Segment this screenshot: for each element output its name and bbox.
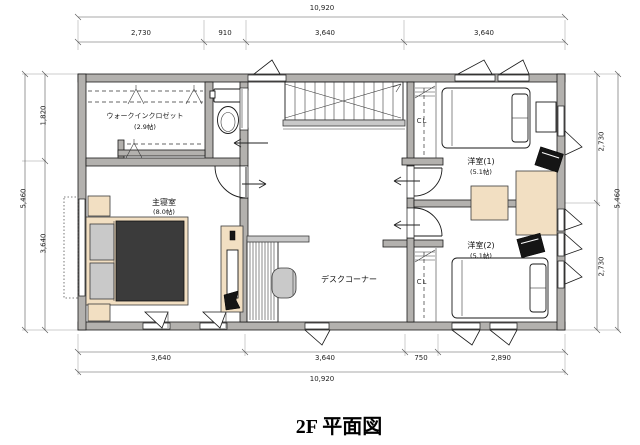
- toilet: [210, 88, 248, 134]
- nightstand: [88, 196, 110, 216]
- room-size-master: (8.0帖): [124, 208, 204, 217]
- master-bed: [86, 217, 188, 305]
- nightstand: [88, 304, 110, 321]
- dim-right-total: 5,460: [614, 179, 623, 219]
- dim-bottom-seg2: 3,640: [295, 354, 355, 363]
- room-label-room1: 洋室(1): [441, 157, 521, 166]
- dim-bottom-seg3: 750: [391, 354, 451, 363]
- room-size-room1: (5.1帖): [441, 168, 521, 177]
- staircase: [283, 82, 405, 129]
- room-size-wic: (2.9帖): [95, 123, 195, 132]
- room-label-master: 主寝室: [124, 198, 204, 207]
- dim-top-seg2: 910: [195, 29, 255, 38]
- dim-top-total: 10,920: [282, 4, 362, 13]
- closet2-label: CL: [410, 278, 434, 287]
- floor-plan-page: 10,920 2,730 910 3,640 3,640 3,640 3,640…: [0, 0, 640, 445]
- dim-bottom-total: 10,920: [282, 375, 362, 384]
- dim-right-seg2: 2,730: [598, 247, 607, 287]
- hanger-icon: [126, 85, 202, 158]
- bed-room1: [442, 88, 556, 148]
- room-label-wic: ウォークインクロゼット: [95, 112, 195, 121]
- dim-bottom-seg4: 2,890: [471, 354, 531, 363]
- dim-top-seg4: 3,640: [454, 29, 514, 38]
- dim-left-total: 5,460: [20, 179, 29, 219]
- door-arrow-icon: [234, 139, 420, 229]
- room-label-room2: 洋室(2): [441, 241, 521, 250]
- bed-room2: [452, 258, 548, 318]
- dim-top-seg3: 3,640: [295, 29, 355, 38]
- mirror-stand: [221, 226, 243, 312]
- dim-left-seg2: 3,640: [40, 224, 49, 264]
- room-label-desk-corner: デスクコーナー: [299, 275, 399, 284]
- room-size-room2: (5.1帖): [441, 252, 521, 261]
- dim-left-seg1: 1,820: [40, 96, 49, 136]
- closet1-label: CL: [410, 117, 434, 126]
- walk-in-closet: [88, 85, 205, 158]
- dim-right-seg1: 2,730: [598, 122, 607, 162]
- page-title: 2F 平面図: [269, 410, 409, 439]
- dim-top-seg1: 2,730: [111, 29, 171, 38]
- dim-bottom-seg1: 3,640: [131, 354, 191, 363]
- desk-chair: [272, 268, 296, 298]
